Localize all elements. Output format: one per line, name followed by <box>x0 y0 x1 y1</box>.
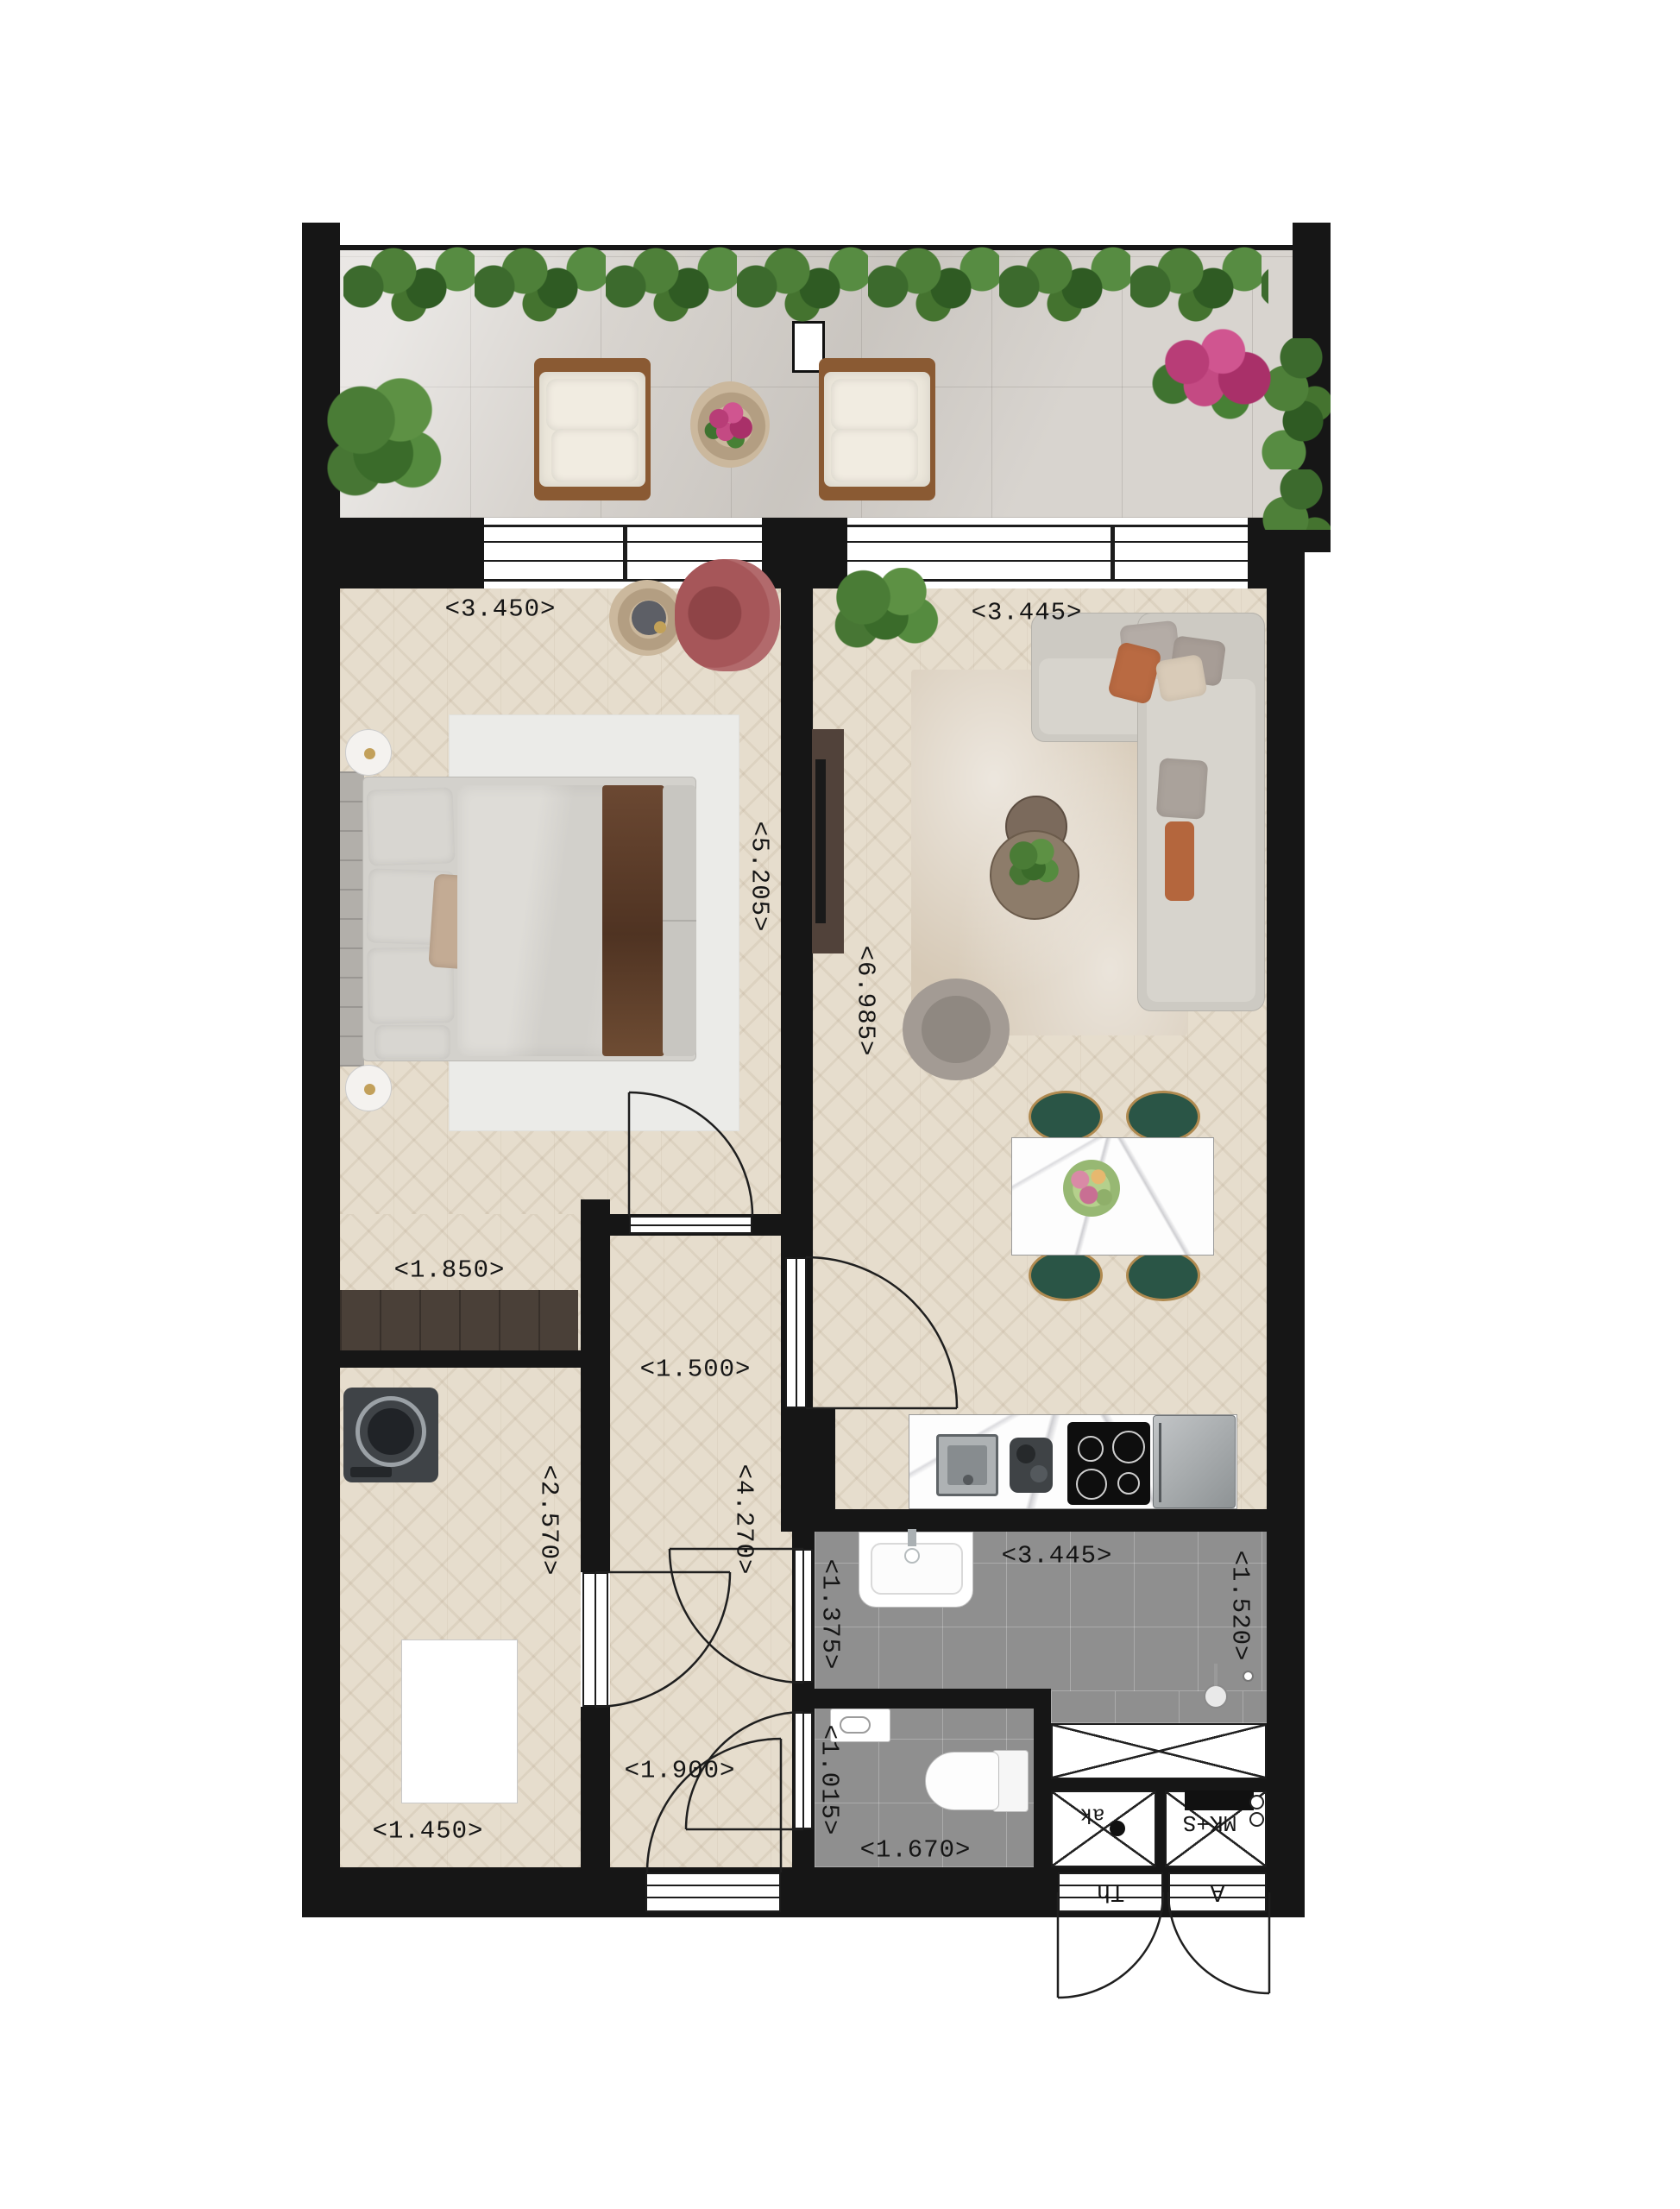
dim-living-depth: <6.985> <box>852 946 880 1057</box>
shower-head <box>1204 1684 1228 1709</box>
dim-utility-width: <1.450> <box>373 1817 484 1846</box>
washing-machine <box>343 1388 438 1482</box>
bed <box>340 771 696 1067</box>
dim-bathroom-width: <3.445> <box>1002 1542 1113 1570</box>
nightstand-bottom <box>345 1065 392 1111</box>
induction-hob <box>1067 1422 1150 1505</box>
dining-chair-top-left <box>1029 1091 1103 1142</box>
bed-pillow-1 <box>366 787 455 865</box>
bedroom-side-table <box>609 580 685 656</box>
coffee-machine <box>1010 1438 1053 1493</box>
washing-machine-panel <box>350 1467 392 1477</box>
dim-bedroom-depth: <5.205> <box>746 821 774 933</box>
balcony-side-table <box>690 381 770 468</box>
kitchen-sink <box>936 1434 998 1496</box>
tv-console <box>812 729 844 953</box>
dim-bathroom-depth-right: <1.520> <box>1226 1551 1255 1662</box>
bathroom-shower-floor <box>1051 1691 1267 1723</box>
kitchen-faucet <box>963 1475 973 1485</box>
wall-closet-divider <box>1156 1790 1165 1867</box>
nightstand-lamp-top <box>364 748 375 759</box>
tv <box>815 759 826 923</box>
bathroom-faucet-knob <box>904 1548 920 1564</box>
label-tech-door-right: A <box>1211 1879 1224 1904</box>
bed-foot-cushions <box>663 785 696 1056</box>
dining-table-flowers <box>1063 1160 1120 1217</box>
bathroom-faucet <box>908 1529 916 1546</box>
closet-hinge-dot <box>1110 1821 1125 1836</box>
dim-utility-depth: <2.570> <box>535 1465 563 1577</box>
bed-headboard <box>340 771 364 1067</box>
dining-chair-bottom-right <box>1126 1249 1200 1301</box>
sofa-pillow-gray-2 <box>1156 758 1209 820</box>
refrigerator <box>1153 1415 1236 1508</box>
wall-kitchen-back <box>781 1509 1305 1532</box>
nightstand-lamp-bottom <box>364 1084 375 1095</box>
bathroom-sink <box>859 1532 973 1608</box>
balcony-potted-plant <box>324 369 447 514</box>
bed-throw <box>602 785 664 1056</box>
label-shaft-right: MK+S <box>1183 1809 1236 1835</box>
dim-bedroom-closet-width: <1.850> <box>394 1256 506 1285</box>
wall-window-left <box>340 518 484 588</box>
refrigerator-handle <box>1159 1423 1161 1502</box>
bedroom-door <box>629 1216 752 1234</box>
living-armchair <box>903 979 1010 1080</box>
bed-pillow-4 <box>374 1025 450 1060</box>
wall-right <box>1267 514 1305 1917</box>
side-table-gold-dot <box>654 621 666 633</box>
living-window-divider <box>1111 525 1115 582</box>
floor-plan: <3.450> <5.205> <1.850> <3.445> <6.985> … <box>0 0 1680 2209</box>
wall-shaft-band <box>1051 1779 1267 1790</box>
dining-table <box>1011 1137 1214 1256</box>
dim-bedroom-width: <3.450> <box>445 595 557 624</box>
shaft-large <box>1051 1723 1267 1779</box>
meter-dial-top <box>1249 1795 1264 1809</box>
dim-wc-depth: <1.015> <box>815 1725 844 1836</box>
living-room-door <box>785 1257 807 1408</box>
wall-bathroom-bottom <box>792 1689 1051 1709</box>
balcony-armchair-left <box>534 358 651 500</box>
dining-chair-bottom-left <box>1029 1249 1103 1301</box>
utility-door <box>582 1572 608 1707</box>
meter-dial-bottom <box>1249 1812 1264 1827</box>
wall-closet-hall-upper <box>581 1199 610 1572</box>
wardrobe <box>340 1290 578 1350</box>
nightstand-top <box>345 729 392 776</box>
balcony-armchair-right <box>819 358 935 500</box>
shower-drain <box>1243 1671 1254 1682</box>
bedroom-window-divider <box>623 525 627 582</box>
label-tech-door-left: Th <box>1097 1879 1124 1904</box>
label-shaft-left: ak <box>1080 1803 1105 1826</box>
wc-door <box>794 1712 813 1829</box>
dim-wc-width: <1.670> <box>860 1836 972 1865</box>
dim-bathroom-depth-left: <1.375> <box>816 1559 845 1671</box>
wall-utility-top <box>340 1350 610 1368</box>
coffee-table-plant <box>1007 836 1062 891</box>
entrance-door <box>645 1872 781 1912</box>
dim-living-width: <3.445> <box>972 599 1083 627</box>
sofa-pillow-cream <box>1155 654 1208 703</box>
balcony-flower-planter <box>1144 319 1287 426</box>
dim-hall-depth: <4.270> <box>730 1464 758 1576</box>
toilet-bowl <box>925 1752 999 1810</box>
sofa-throw-orange <box>1165 821 1194 901</box>
meter-equipment-box <box>1185 1790 1254 1810</box>
bathroom-door <box>794 1549 813 1683</box>
bedroom-accent-chair <box>675 559 780 671</box>
balcony-hedge-top <box>343 243 1268 323</box>
dining-chair-top-right <box>1126 1091 1200 1142</box>
dim-hall-lower-width: <1.900> <box>625 1757 736 1785</box>
floor-mat <box>401 1639 518 1803</box>
living-armchair-seat <box>922 996 991 1063</box>
dim-hall-width: <1.500> <box>640 1356 752 1384</box>
living-room-plant <box>827 568 949 652</box>
shower-arm <box>1214 1664 1218 1686</box>
wall-closet-hall-lower <box>581 1707 610 1867</box>
wall-kitchen-stub <box>781 1408 835 1509</box>
